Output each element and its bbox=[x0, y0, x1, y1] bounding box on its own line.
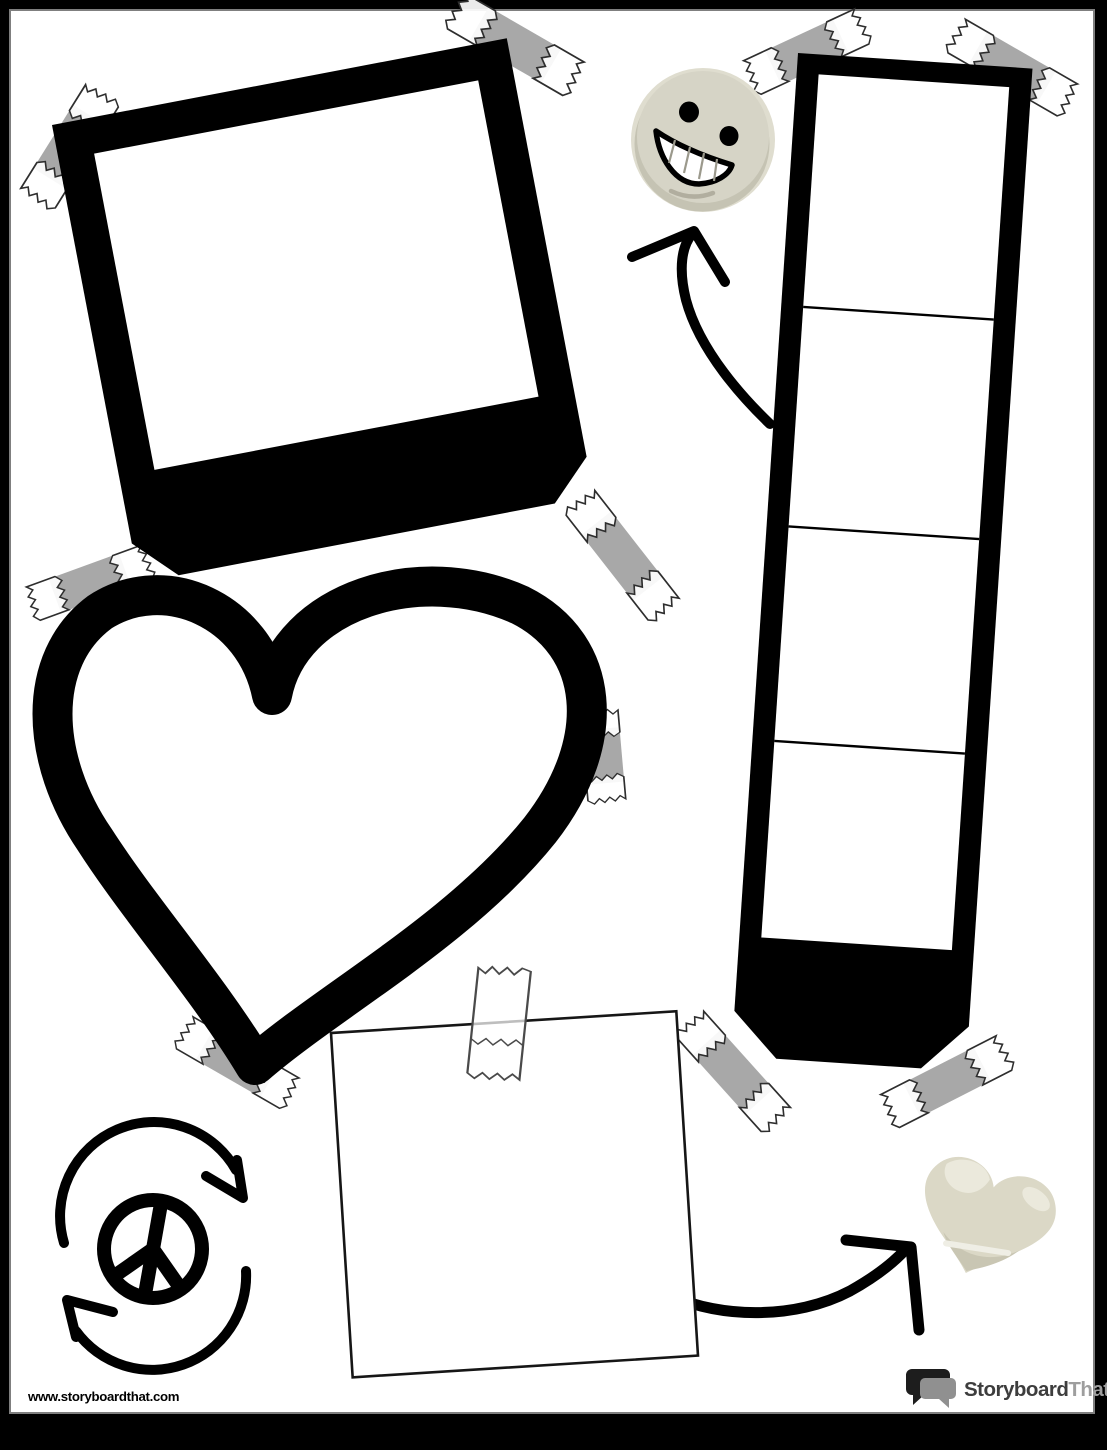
smiley-left-eye-icon bbox=[679, 102, 699, 123]
logo-text-secondary: That bbox=[1068, 1378, 1107, 1401]
logo-text: StoryboardThat bbox=[964, 1378, 1107, 1401]
smiley-face-sticker[interactable] bbox=[631, 68, 775, 212]
smiley-right-eye-icon bbox=[720, 126, 739, 146]
scrapbook-template-page: www.storyboardthat.com StoryboardThat bbox=[0, 0, 1107, 1450]
polaroid-photo-frame[interactable] bbox=[52, 38, 594, 583]
watermark-url: www.storyboardthat.com bbox=[27, 1389, 179, 1404]
scrapbook-canvas: www.storyboardthat.com StoryboardThat bbox=[0, 0, 1107, 1450]
note-tape-icon bbox=[467, 964, 531, 1083]
logo-text-primary: Storyboard bbox=[964, 1378, 1068, 1401]
